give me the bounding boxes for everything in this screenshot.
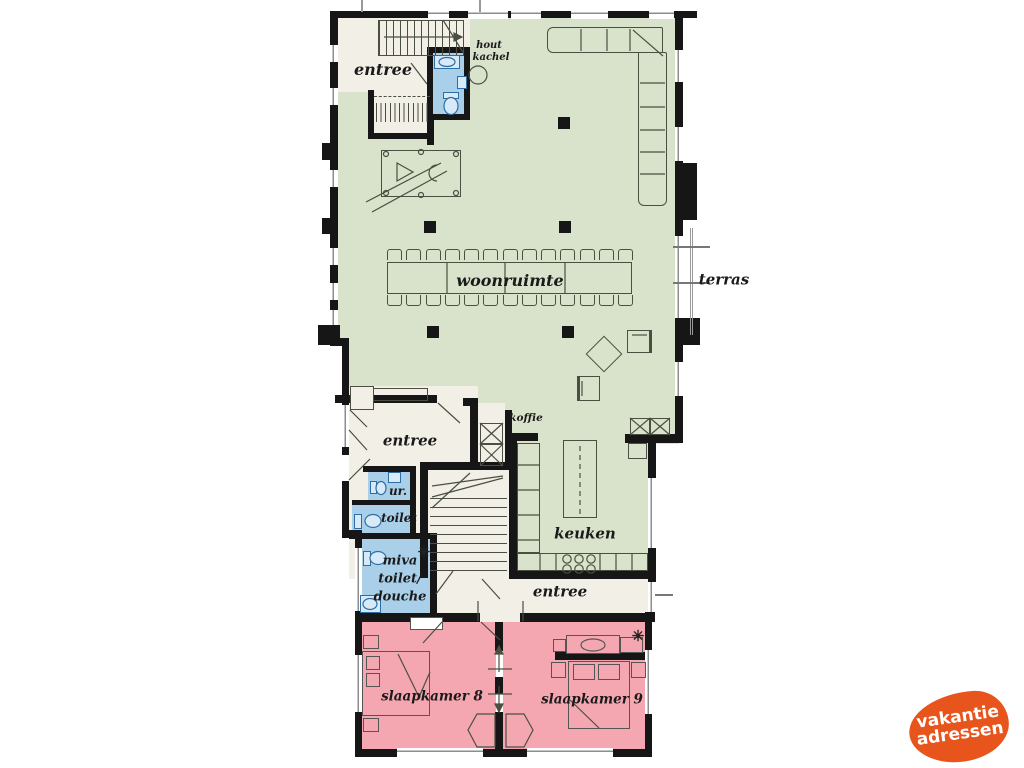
nightstand-sk8-2: [363, 718, 379, 732]
dining-chairs-top: [387, 249, 633, 261]
column: [558, 117, 570, 129]
label-toilet: toilet: [381, 512, 417, 524]
wall-jog-left: [330, 338, 349, 346]
dining-chair: [618, 249, 633, 260]
dining-chair: [406, 295, 421, 306]
column: [559, 221, 571, 233]
floorplan: entree hout kachel woonruimte terras ent…: [0, 0, 1024, 768]
window-right-2: [675, 127, 683, 161]
lot-line-top: [479, 0, 481, 12]
dining-chair: [560, 295, 575, 306]
wall-kitchen-top: [509, 433, 538, 441]
koffie-cabinet-2: [480, 444, 503, 466]
kitchen-counter-bottom: [517, 553, 648, 571]
window-top-1: [428, 10, 449, 19]
window-left-5: [330, 283, 338, 300]
window-right-terras: [675, 236, 683, 318]
sink-bathroom: [434, 55, 460, 69]
dining-chair: [445, 249, 460, 260]
urinal-ur-room: [370, 481, 377, 494]
label-terras: terras: [699, 273, 749, 288]
sofa-right-arm: [638, 52, 667, 206]
dining-chair: [406, 249, 421, 260]
pillow-sk8-1: [366, 656, 380, 670]
armchair-1: [627, 330, 652, 353]
closet-entree: [350, 386, 374, 410]
label-miva-1: miva: [383, 555, 418, 568]
sofa-top-arm: [547, 27, 663, 53]
window-sk8-bottom: [397, 748, 483, 757]
wall-miva-top: [349, 533, 437, 539]
dining-chair: [599, 249, 614, 260]
pillow-sk8-2: [366, 673, 380, 687]
coat-shelf: [374, 96, 430, 98]
armchair-2: [577, 376, 600, 401]
window-left-2: [330, 88, 338, 105]
wall-kitchen-right-a: [648, 443, 656, 478]
pillow-sk9-2: [598, 664, 620, 680]
dining-chair: [483, 249, 498, 260]
vakantieadressen-logo: vakantie adressen: [903, 690, 1015, 766]
wall-coat-bottom: [368, 133, 432, 139]
window-corridor-right: [648, 582, 655, 612]
label-miva-3: douche: [374, 591, 427, 604]
koffie-cabinet-1: [480, 423, 503, 444]
stairs-top: [378, 20, 464, 56]
wall-stair-left: [420, 470, 428, 578]
coat-hooks: [376, 103, 428, 122]
wall-bedroom-partition-a: [495, 622, 503, 651]
pillow-sk9-1: [573, 664, 595, 680]
door-sk9: [480, 613, 520, 622]
window-left-3: [330, 170, 338, 187]
dining-chair: [426, 249, 441, 260]
window-right-1: [675, 50, 683, 82]
nightstand-sk8-1: [363, 635, 379, 649]
dining-chair: [618, 295, 633, 306]
label-slaapkamer-8: slaapkamer 8: [381, 690, 483, 704]
wall-nook-left: [470, 403, 478, 468]
dining-chair: [522, 249, 537, 260]
window-kitchen-right: [648, 478, 656, 548]
dining-chair: [599, 295, 614, 306]
kitchen-island: [563, 440, 597, 518]
window-right-3: [675, 362, 683, 396]
toilet-tank-bathroom: [443, 92, 459, 99]
label-hout-1: hout: [476, 41, 502, 51]
toilet-tank-miva: [363, 551, 371, 566]
dining-chair: [464, 249, 479, 260]
window-sk8-left: [355, 655, 362, 712]
pilaster-right: [675, 163, 697, 220]
terras-tick-1: [673, 246, 710, 248]
window-left-1: [330, 45, 338, 62]
window-top-2: [468, 10, 508, 19]
sideboard: [368, 388, 428, 401]
dining-chair: [387, 249, 402, 260]
door-tick-corridor: [655, 594, 673, 596]
window-left-4: [330, 248, 338, 265]
urinal-bathroom: [457, 76, 467, 89]
label-entree-bottom: entree: [533, 585, 587, 600]
basin-cabinet-sk9: [566, 635, 620, 654]
dining-chair: [522, 295, 537, 306]
label-miva-2: toilet/: [378, 573, 422, 586]
kitchen-cabinet-x1: [630, 418, 650, 435]
sink-ur-room: [388, 472, 401, 483]
toilet-tank-toiletroom: [354, 514, 362, 529]
label-woonruimte: woonruimte: [456, 273, 563, 289]
window-top-5: [649, 10, 674, 19]
dining-chair: [387, 295, 402, 306]
dining-chair: [541, 249, 556, 260]
wall-toilets-right: [410, 466, 416, 539]
window-top-4: [571, 10, 608, 19]
label-slaapkamer-9: slaapkamer 9: [541, 693, 643, 707]
label-entree-top: entree: [354, 62, 412, 78]
doormat-sk8: [410, 617, 443, 630]
shower-icon: ✳: [418, 543, 431, 561]
dining-chair: [503, 249, 518, 260]
stairs-mid: [430, 498, 507, 572]
pilaster-left-2: [322, 218, 338, 234]
dining-chair: [541, 295, 556, 306]
label-koffie: koffie: [509, 413, 543, 424]
lot-line-top-left: [361, 0, 363, 12]
dining-chair: [426, 295, 441, 306]
column: [424, 221, 436, 233]
label-hout-2: kachel: [473, 53, 510, 63]
kitchen-cabinet-x2: [650, 418, 670, 435]
dining-chair: [483, 295, 498, 306]
wall-kitchen-bottom: [509, 571, 652, 579]
pool-table: [381, 150, 461, 197]
window-sk9-right: [645, 650, 652, 714]
dining-chair: [580, 249, 595, 260]
label-ur: ur.: [389, 485, 407, 497]
dining-chair: [580, 295, 595, 306]
pilaster-left-1: [322, 143, 338, 160]
window-midleft: [342, 405, 349, 447]
wall-bedroom-partition-c: [495, 712, 503, 757]
column: [427, 326, 439, 338]
label-keuken: keuken: [554, 527, 616, 542]
door-midleft: [342, 455, 349, 481]
window-top-3: [511, 10, 541, 19]
dining-chair: [503, 295, 518, 306]
wall-ur-toilet-div: [352, 500, 416, 505]
cabinet-sk9-left: [553, 639, 566, 652]
dining-chair: [464, 295, 479, 306]
label-entree-mid: entree: [383, 434, 437, 449]
dining-chair: [445, 295, 460, 306]
window-sk9-bottom: [527, 748, 613, 757]
nightstand-sk9-2: [631, 662, 646, 678]
wall-step-right: [625, 434, 683, 443]
kitchen-cabinet-small: [628, 443, 647, 459]
shower-icon: ✳: [632, 627, 645, 645]
column: [562, 326, 574, 338]
kitchen-counter-left: [517, 443, 540, 553]
wall-bedroom-partition-b: [495, 677, 503, 694]
dining-chairs-bottom: [387, 295, 633, 307]
nightstand-sk9-1: [551, 662, 566, 678]
corner-right: [675, 318, 700, 345]
wall-kitchen-left: [509, 441, 517, 579]
dining-chair: [560, 249, 575, 260]
